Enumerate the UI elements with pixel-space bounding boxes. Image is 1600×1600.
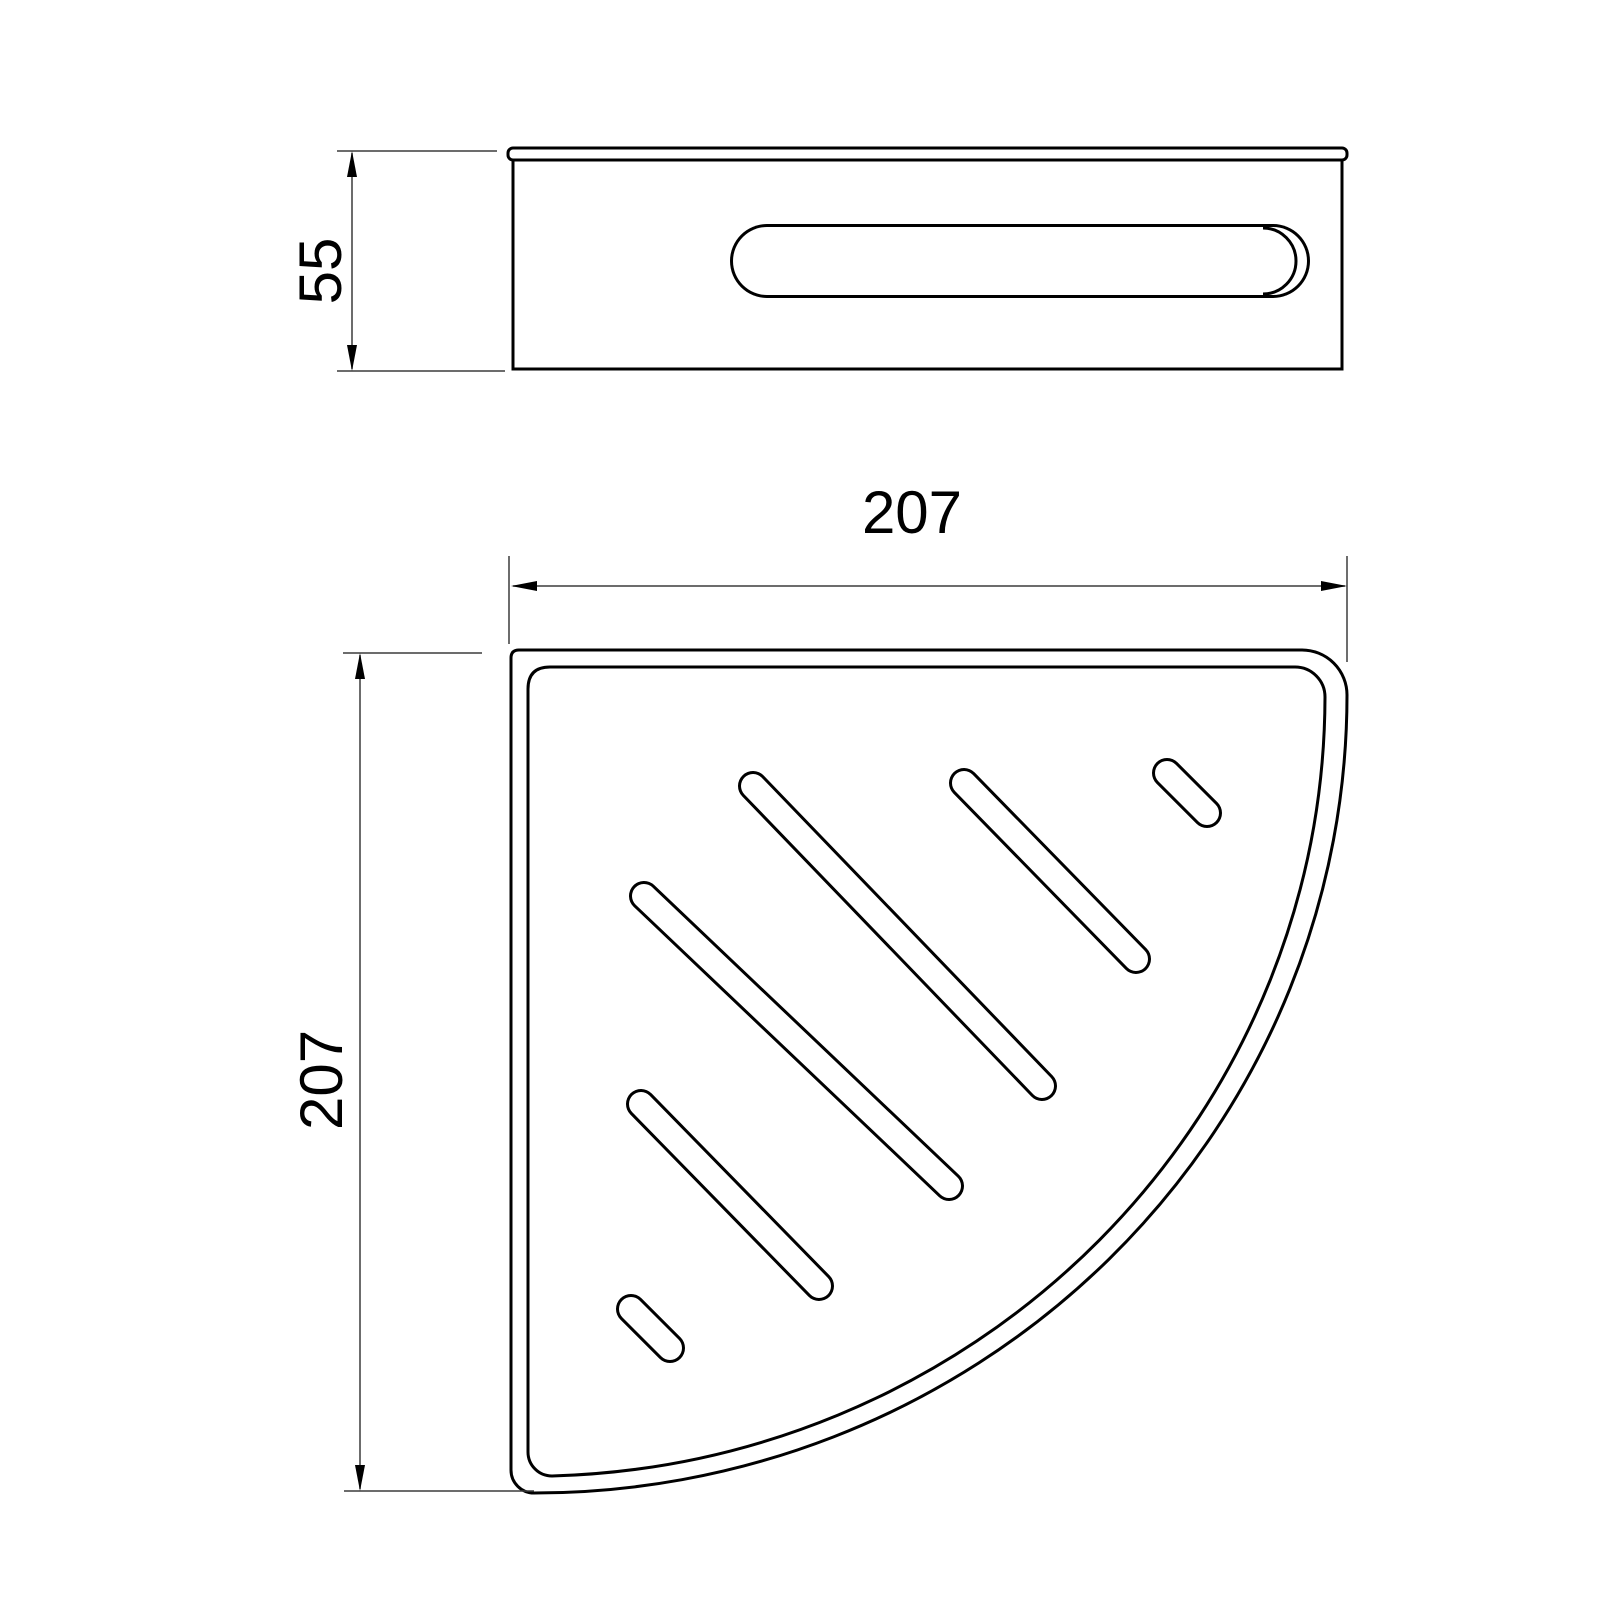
dim-height-55 [337,151,505,371]
plan-view: 207 207 [288,479,1347,1493]
dim-label-width: 207 [862,479,962,546]
drawing-canvas: 55 [0,0,1600,1600]
front-view: 55 [287,148,1347,371]
dim-depth-207 [343,653,534,1491]
arrowhead-up [347,151,357,177]
arrowhead-right [1321,581,1347,591]
dim-label-height: 55 [287,238,354,305]
arrowhead-up [355,653,365,679]
front-rim-outline [508,148,1347,160]
dim-label-depth: 207 [288,1030,355,1130]
arrowhead-left [511,581,537,591]
arrowhead-down [355,1465,365,1491]
dim-width-207 [509,556,1347,662]
plan-outer-outline [511,650,1347,1493]
front-mount-slot [767,228,1296,294]
arrowhead-down [347,345,357,371]
technical-drawing: 55 [0,0,1600,1600]
